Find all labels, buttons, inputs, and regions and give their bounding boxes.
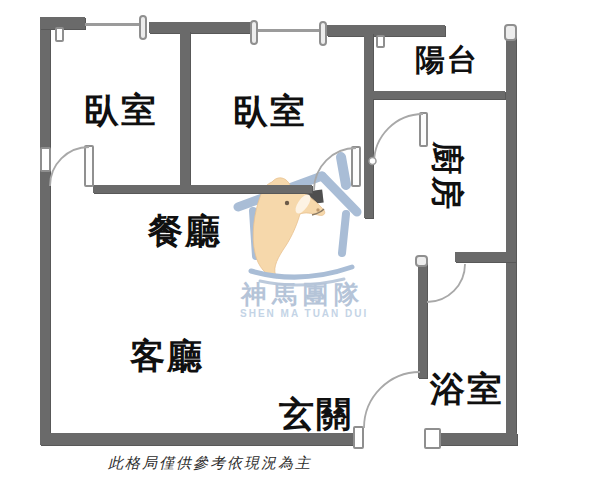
room-label-bathroom: 浴室 <box>430 371 504 406</box>
room-label-kitchen: 廚房 <box>431 142 464 210</box>
room-label-entry: 玄關 <box>279 396 353 431</box>
kitchen-door-arc <box>374 114 423 163</box>
room-label-living: 客廳 <box>130 338 204 373</box>
disclaimer-text: 此格局僅供參考依現況為主 <box>100 454 320 472</box>
floor-plan-canvas: 神馬團隊 SHEN MA TUAN DUI 臥室 臥室 陽台 廚房 餐廳 客廳 … <box>0 0 600 480</box>
entrance-door-arc <box>364 372 420 428</box>
bathroom-door-arc <box>427 264 465 302</box>
bedroom2-door-arc <box>314 148 356 190</box>
room-label-balcony: 陽台 <box>415 45 479 75</box>
room-label-bedroom-2: 臥室 <box>233 93 307 128</box>
kitchen-door-hinge <box>369 158 376 165</box>
room-label-dining: 餐廳 <box>148 213 222 248</box>
bedroom1-door-arc <box>50 147 89 186</box>
room-label-bedroom-1: 臥室 <box>84 92 158 127</box>
